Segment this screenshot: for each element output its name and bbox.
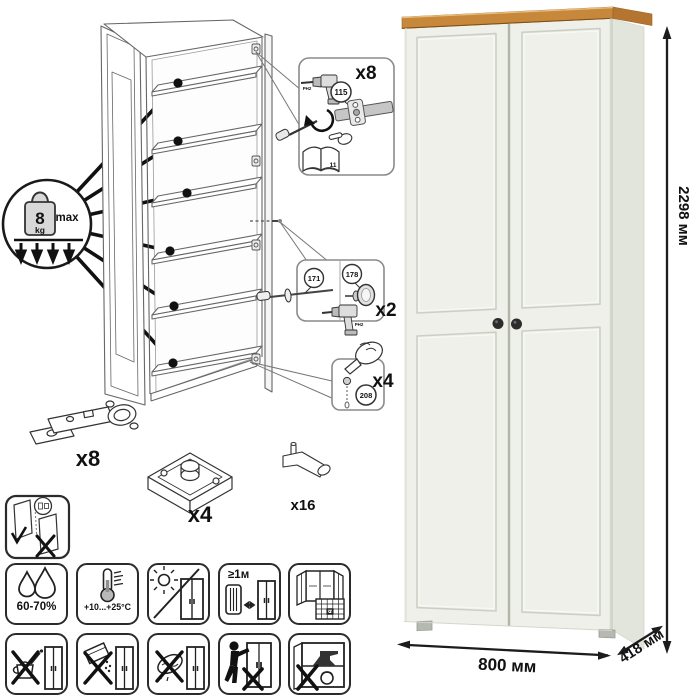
manual-page: 11 xyxy=(330,162,337,169)
calendar-day: 21 xyxy=(327,609,333,614)
dowel-detail: 208 x4 xyxy=(332,338,394,410)
shelf-pin-hardware-icon xyxy=(283,443,332,478)
width-dimension: 800 мм xyxy=(397,641,611,677)
care-no-direct-sun xyxy=(147,563,210,625)
care-no-solvents xyxy=(5,633,68,695)
heat-distance-icon: ≥1м xyxy=(220,565,279,623)
care-no-wet-cleaning xyxy=(147,633,210,695)
care-no-abrasives xyxy=(76,633,139,695)
part-number-115: 115 xyxy=(335,88,348,97)
hinge-hardware-icon xyxy=(30,401,138,444)
closed-door-edge xyxy=(265,34,272,392)
care-no-heavy-items xyxy=(288,633,351,695)
part-number-178: 178 xyxy=(346,270,359,279)
thermometer-icon xyxy=(78,565,137,603)
knob-detail: 171 178 x2 PH2 xyxy=(257,260,397,335)
no-solvents-icon xyxy=(7,635,66,693)
care-heat-distance: ≥1м xyxy=(218,563,281,625)
no-sunlight-icon xyxy=(149,565,208,623)
hinge-mount-detail: x8 PH2 115 xyxy=(275,58,395,175)
cabinet-wireframe xyxy=(101,20,272,405)
foot-hardware-count: x4 xyxy=(188,502,213,527)
no-heavy-items-icon xyxy=(290,635,349,693)
door-adjustment-icon xyxy=(6,496,69,558)
manual-book-icon: 11 xyxy=(303,147,339,172)
temperature-range: +10...+25°C xyxy=(84,603,131,612)
water-drops-icon xyxy=(7,565,66,602)
max-load-unit: kg xyxy=(35,225,45,235)
kettlebell-icon xyxy=(321,672,333,684)
min-distance-label: ≥1м xyxy=(228,569,249,581)
care-humidity: 60-70% xyxy=(5,563,68,625)
height-dimension: 2298 мм xyxy=(663,26,689,654)
bit-label: PH2 xyxy=(303,86,312,91)
assembly-instruction-sheet: 8 kg max x8 xyxy=(0,0,689,700)
care-no-dragging xyxy=(218,633,281,695)
hinge-hardware-count: x8 xyxy=(76,446,100,471)
max-load-badge: 8 kg max xyxy=(3,180,91,268)
window-ventilation-icon: 21 xyxy=(290,565,349,623)
wardrobe-side-panel xyxy=(612,19,644,649)
left-door-knob[interactable] xyxy=(493,318,504,329)
care-temperature: +10...+25°C xyxy=(76,563,139,625)
no-dragging-icon xyxy=(220,635,279,693)
hinge-mount-count: x8 xyxy=(355,63,376,84)
right-door-knob[interactable] xyxy=(511,319,522,330)
wireframe-diagram: 8 kg max x8 xyxy=(0,0,400,560)
no-abrasive-powder-icon xyxy=(78,635,137,693)
no-wet-cloth-icon xyxy=(149,635,208,693)
humidity-range: 60-70% xyxy=(17,602,57,614)
product-render: 2298 мм 800 мм 418 мм xyxy=(390,0,689,700)
width-value: 800 мм xyxy=(478,655,537,677)
part-number-208: 208 xyxy=(360,391,373,400)
shelf-pin-count: x16 xyxy=(290,497,315,514)
part-number-171: 171 xyxy=(308,274,321,283)
person-figure xyxy=(225,641,250,683)
bit-label-2: PH2 xyxy=(355,322,364,327)
height-value: 2298 мм xyxy=(675,186,689,246)
care-ventilation: 21 xyxy=(288,563,351,625)
max-load-qualifier: max xyxy=(55,212,79,224)
calendar-icon: 21 xyxy=(316,599,344,619)
